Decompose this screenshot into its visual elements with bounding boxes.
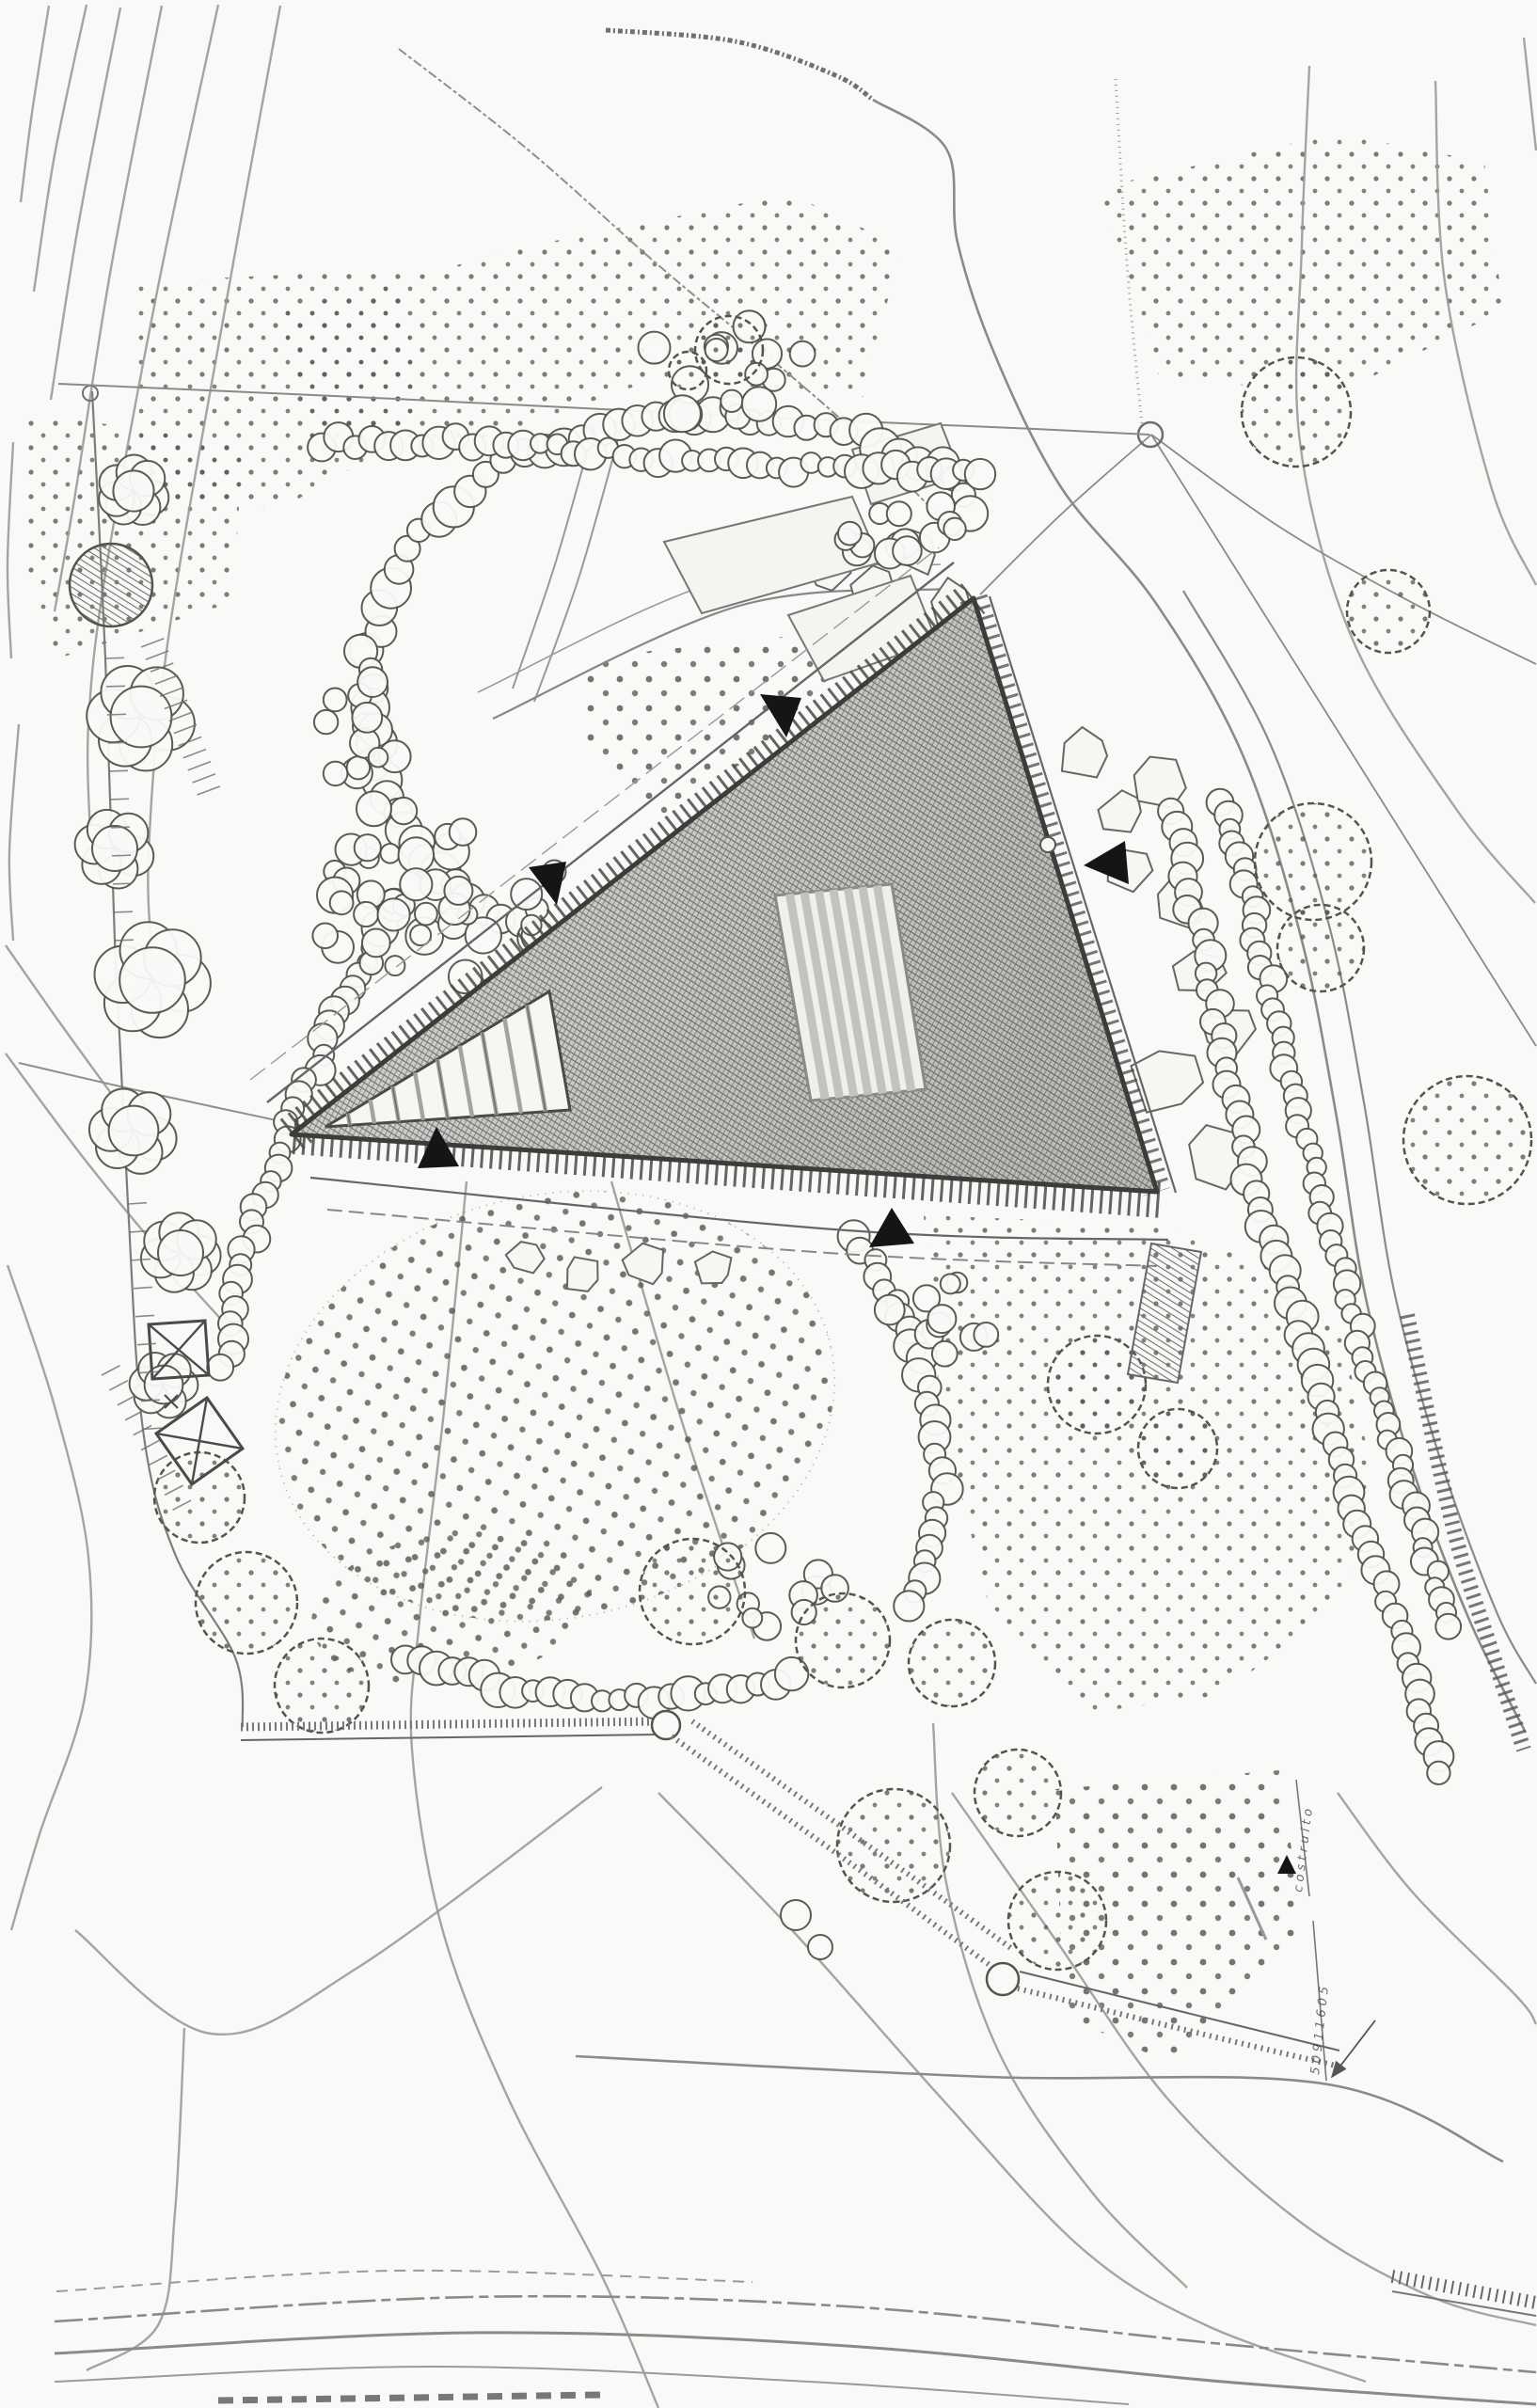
shrub-bubble: [415, 903, 437, 926]
tree-canopy-dotted: [154, 1452, 245, 1543]
shrub-bubble: [927, 1305, 956, 1333]
tree-canopy-dotted: [1403, 1076, 1531, 1204]
shrub-bubble: [145, 1366, 183, 1404]
hachure-tick: [114, 911, 133, 912]
hachure-tick: [111, 827, 130, 828]
tree-canopy-dotted: [1048, 1336, 1146, 1434]
shrub-bubble: [755, 1533, 785, 1563]
path-post-circle: [652, 1711, 680, 1739]
hachure-tick: [109, 770, 128, 771]
shrub-bubble: [974, 1323, 998, 1347]
hachure-tick: [106, 686, 125, 687]
paving-stone: [567, 1257, 597, 1291]
shrub-bubble: [742, 387, 776, 420]
tree-canopy-dotted: [640, 1539, 745, 1644]
shrub-bubble: [1435, 1614, 1461, 1640]
shrub-bubble: [324, 689, 347, 712]
shrub-bubble: [312, 924, 338, 949]
shrub-bubble: [400, 868, 432, 900]
hachure-tick: [112, 855, 131, 856]
shrub-bubble: [369, 748, 388, 768]
shrub-bubble: [887, 501, 911, 526]
shrub-bubble: [207, 1354, 233, 1381]
hachure-tick: [107, 714, 126, 715]
tree-canopy-dotted: [1255, 803, 1371, 920]
shrub-bubble: [119, 947, 185, 1013]
shrub-bubble: [390, 798, 417, 824]
tree-canopy-dotted: [1138, 1409, 1217, 1488]
shrub-bubble: [444, 877, 472, 905]
tree-canopy-dotted: [974, 1750, 1061, 1836]
shrub-bubble: [721, 390, 742, 412]
shrub-bubble: [943, 518, 965, 540]
shrub-bubble: [965, 459, 995, 489]
site-plan-canvas: costruito 50911605: [0, 0, 1537, 2408]
shrub-bubble: [354, 902, 378, 927]
shrub-bubble: [381, 844, 401, 863]
roof-edge-dot: [1040, 837, 1055, 852]
shrub-bubble: [893, 536, 922, 565]
hachure-tick: [110, 799, 129, 800]
shrub-bubble: [742, 1608, 762, 1628]
tree-canopy-dotted: [837, 1789, 950, 1902]
shrub-bubble: [664, 395, 701, 432]
hachure-tick: [105, 657, 124, 658]
shrub-bubble: [113, 470, 153, 511]
shrub-bubble: [357, 791, 391, 826]
tree-canopy-dotted: [1242, 357, 1351, 467]
shrub-bubble: [894, 1591, 924, 1621]
tree-canopy-hatched: [70, 544, 152, 626]
shrub-bubble: [521, 915, 541, 935]
shrub-bubble: [932, 1341, 958, 1367]
shrub-bubble: [109, 1106, 159, 1156]
hachure-tick: [113, 883, 132, 884]
shrub-bubble: [941, 1274, 960, 1293]
tree-canopy-dotted: [1277, 905, 1364, 991]
tree-canopy-dotted: [1008, 1872, 1106, 1970]
shrub-bubble: [639, 332, 671, 364]
shrub-bubble: [362, 929, 390, 958]
shrub-bubble: [314, 710, 338, 734]
shrub-bubble: [838, 522, 862, 546]
shrub-bubble: [92, 826, 137, 871]
shrub-bubble: [330, 891, 354, 914]
shrub-bubble: [357, 667, 388, 697]
tree-canopy-dotted: [196, 1552, 297, 1654]
shrub-bubble: [158, 1230, 203, 1275]
tree-canopy-dotted: [1347, 570, 1430, 653]
shrub-bubble: [875, 1295, 905, 1325]
tree-canopy-dotted: [275, 1639, 369, 1733]
shrub-bubble: [511, 879, 542, 910]
hachure-tick: [108, 742, 127, 743]
tree-canopy-dotted: [669, 352, 706, 389]
tree-canopy-dotted: [909, 1620, 995, 1706]
shrub-bubble: [352, 703, 382, 733]
shrub-bubble: [347, 756, 370, 779]
path-post-circle: [987, 1963, 1019, 1995]
shrub-bubble: [324, 762, 348, 786]
shrub-bubble: [790, 341, 816, 367]
shrub-bubble: [355, 834, 381, 861]
shrub-bubble: [1427, 1762, 1450, 1784]
shrub-bubble: [808, 1935, 832, 1959]
site-plan-sheet: costruito 50911605: [0, 0, 1537, 2408]
tree-canopy-dotted: [796, 1593, 890, 1687]
shrub-bubble: [450, 818, 477, 846]
shrub-bubble: [781, 1900, 811, 1930]
hachure-tick: [115, 940, 134, 941]
shrub-bubble: [378, 898, 410, 930]
